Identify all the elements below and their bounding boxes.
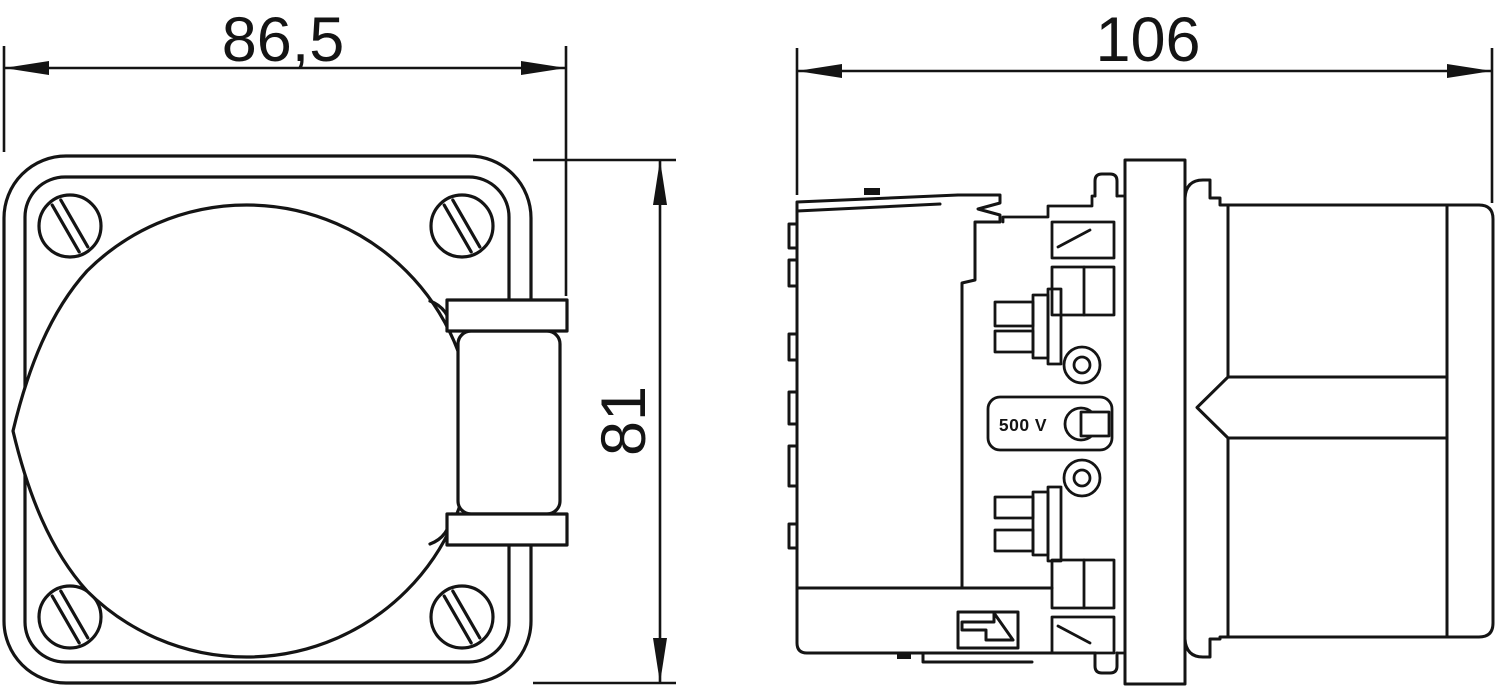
terminal-top-edge [1003,196,1125,222]
body-step-top [1185,180,1228,205]
arrowhead-top [653,160,667,205]
drawing-canvas: 86,5 81 [0,0,1500,689]
terminal-screw-hole-upper [1064,347,1100,383]
clamp-tab [995,302,1033,326]
body-step-bottom [1185,637,1228,657]
arrowhead-bottom [653,638,667,683]
snap-hook-top [958,195,1000,588]
voltage-marking-label: 500 V [999,415,1047,435]
hinge-strip-bottom [447,514,567,545]
wire-clamp-lower [995,487,1061,561]
clamp-tab [995,497,1033,518]
housing-top-inner-line [797,204,940,211]
flange-pin-top [1095,174,1117,196]
terminal-cutout-detail [1058,626,1090,643]
housing-left-nub [789,524,797,548]
clamp-bracket-plate [1048,487,1061,561]
front-height-dimension-label: 81 [589,386,659,456]
clamp-bracket [1033,295,1048,358]
side-view [789,160,1493,684]
housing-left-nub [789,260,797,286]
body-band [1197,377,1447,438]
housing-front-block [789,188,1095,662]
housing-left-nub [789,446,797,486]
front-width-dimension-label: 86,5 [222,5,345,75]
clamp-tab [995,530,1033,551]
screw-slot [444,200,480,252]
screw-slot [52,200,88,252]
arrowhead-right [521,61,566,75]
housing-left-nub [789,224,797,248]
flange-pin-bottom [1095,653,1117,673]
technical-drawing-page: 86,5 81 [0,0,1500,689]
screw-slot [444,591,480,643]
side-depth-dimension-label: 106 [1095,5,1200,75]
housing-bottom-tick [897,653,911,659]
screw-bottom-right [431,586,493,648]
front-view [4,156,567,683]
screw-slot [52,591,88,643]
clamp-tab [995,331,1033,352]
housing-left-nub [789,334,797,360]
terminal-cutout-detail [1058,230,1090,247]
housing-left-nub [789,392,797,424]
clamp-bracket [1033,492,1048,555]
terminal-cutout [1052,222,1114,258]
screw-top-left [39,195,101,257]
housing-top-tick [864,188,880,195]
arrowhead-right [1447,64,1492,78]
arrowhead-left [797,64,842,78]
body-outline [1228,205,1493,637]
screw-top-right [431,195,493,257]
arrowhead-left [4,61,49,75]
hinge-knuckle [458,331,560,514]
hinge-strip-top [447,300,567,331]
clamp-bracket-plate [1048,289,1061,364]
rating-key-slot [1081,412,1109,436]
socket-body [1185,180,1493,657]
flange-plate [1125,160,1185,684]
terminal-screw-hole-lower [1064,460,1100,496]
housing-outline [797,195,1095,653]
terminal-cutout [1052,617,1114,653]
